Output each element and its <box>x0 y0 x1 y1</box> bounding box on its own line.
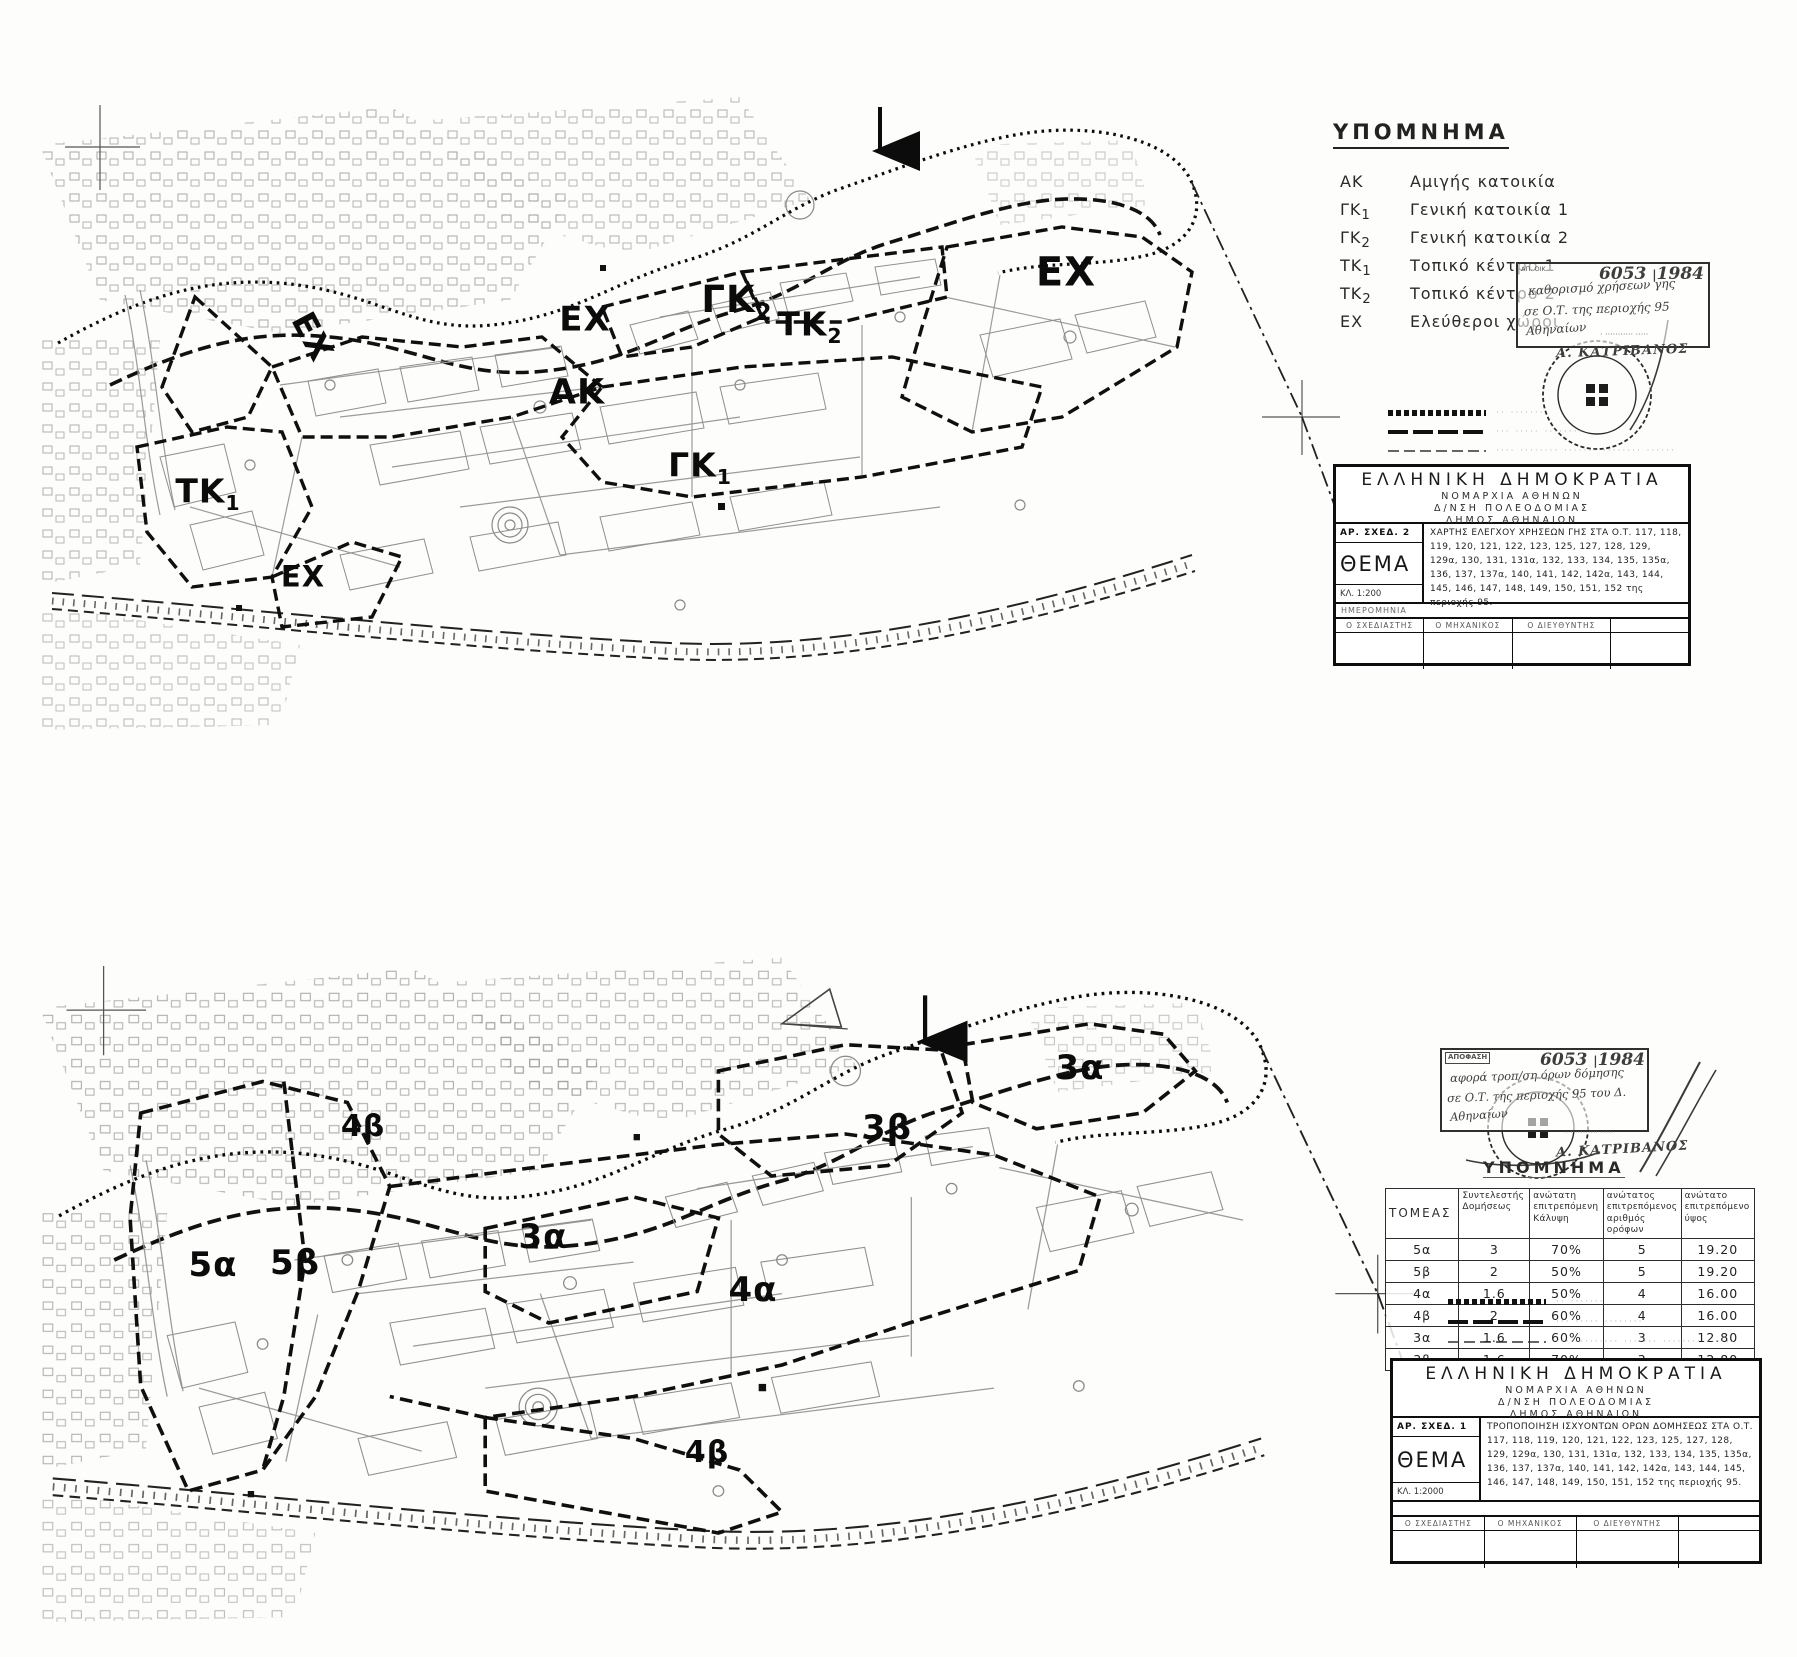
sector-label-4b-top: 4β <box>341 1112 385 1142</box>
sig-engineer: Ο ΜΗΧΑΝΙΚΟΣ <box>1424 619 1512 632</box>
sector-label-5a: 5α <box>188 1248 237 1282</box>
title-country: ΕΛΛΗΝΙΚΗ ΔΗΜΟΚΡΑΤΙΑ <box>1393 1364 1759 1384</box>
date-row <box>1393 1502 1759 1517</box>
col-orofoi: ανώτατος επιτρεπόμενος αριθμός ορόφων <box>1603 1189 1681 1239</box>
sector-label-4b-bottom: 4β <box>685 1438 729 1468</box>
theme-description: ΤΡΟΠΟΠΟΙΗΣΗ ΙΣΧΥΟΝΤΩΝ ΟΡΩΝ ΔΟΜΗΣΕΩΣ ΣΤΑ … <box>1481 1418 1759 1500</box>
zoning-table-header-row: ΤΟΜΕΑΣ Συντελεστής Δομήσεως ανώτατη επιτ… <box>1386 1189 1755 1239</box>
title-block-bottom: ΕΛΛΗΝΙΚΗ ΔΗΜΟΚΡΑΤΙΑ ΝΟΜΑΡΧΙΑ ΑΘΗΝΩΝ Δ/ΝΣ… <box>1390 1358 1762 1564</box>
stamp-handwriting-3: Αθηναίων <box>1526 320 1587 338</box>
zone-label-ex-3: ΕΧ <box>281 563 325 598</box>
line-legend-top-2: ··· ····· ········ <box>1388 427 1584 437</box>
stamp-corner-text: ΑΠ. ΟΙΚ. <box>1521 266 1548 273</box>
sig-engineer: Ο ΜΗΧΑΝΙΚΟΣ <box>1485 1517 1577 1530</box>
sector-label-3a-mid: 3α <box>518 1220 567 1254</box>
line-sample-dotted-icon <box>1448 1298 1546 1306</box>
drawing-number: ΑΡ. ΣΧΕΔ. 2 <box>1336 524 1422 543</box>
title-country: ΕΛΛΗΝΙΚΗ ΔΗΜΟΚΡΑΤΙΑ <box>1336 470 1688 490</box>
zone-label-tk2: ΤΚ2 <box>777 307 842 346</box>
title-directorate: Δ/ΝΣΗ ΠΟΛΕΟΔΟΜΙΑΣ <box>1336 503 1688 514</box>
sector-label-3a-right: 3α <box>1055 1051 1104 1085</box>
sig-blank <box>1679 1517 1759 1530</box>
line-sample-thin-icon <box>1388 447 1486 455</box>
zone-label-ex-4: ΕΧ <box>1036 253 1096 300</box>
stamp-handwriting-1: καθορισμό χρήσεων γης <box>1528 276 1676 298</box>
line-legend-bottom-1: ·· ······· <box>1448 1297 1605 1307</box>
col-ypsos: ανώτατο επιτρεπόμενο ύψος <box>1681 1189 1754 1239</box>
zone-label-gk2: ΓΚ2 <box>701 281 772 325</box>
theme-description: ΧΑΡΤΗΣ ΕΛΕΓΧΟΥ ΧΡΗΣΕΩΝ ΓΗΣ ΣΤΑ Ο.Τ. 117,… <box>1424 524 1688 602</box>
sector-label-3b: 3β <box>862 1111 912 1145</box>
stamp-handwriting-2: σε Ο.Τ. της περιοχής 95 του Δ. <box>1447 1085 1627 1105</box>
title-directorate: Δ/ΝΣΗ ΠΟΛΕΟΔΟΜΙΑΣ <box>1393 1397 1759 1408</box>
date-row: ΗΜΕΡΟΜΗΝΙΑ <box>1336 604 1688 619</box>
sig-drafter: Ο ΣΧΕΔΙΑΣΤΗΣ <box>1336 619 1424 632</box>
sector-label-5b: 5β <box>270 1246 320 1280</box>
scale-label: ΚΛ. 1:200 <box>1336 585 1422 602</box>
stamp-handwriting-3: Αθηναίων <box>1450 1106 1509 1124</box>
scanned-planning-sheet: ΕΧ ΕΧ ΓΚ2 ΤΚ2 ΑΚ ΓΚ1 ΤΚ1 ΕΧ ΕΧ 3α 4β 3β … <box>0 0 1797 1657</box>
sector-label-4a: 4α <box>728 1273 777 1307</box>
legend-item-gk2: ΓΚ2 Γενική κατοικία 2 <box>1340 228 1569 251</box>
table-row: 5α3 70%5 19.20 <box>1386 1239 1755 1261</box>
line-sample-thin-icon <box>1448 1338 1546 1346</box>
sig-director: Ο ΔΙΕΥΘΥΝΤΗΣ <box>1513 619 1612 632</box>
sig-blank <box>1611 619 1688 632</box>
scale-label: ΚΛ. 1:2000 <box>1393 1483 1479 1500</box>
stamp-approver-top: · ··········· ····· <box>1600 330 1648 339</box>
col-tomeas: ΤΟΜΕΑΣ <box>1386 1189 1459 1239</box>
map-top <box>40 97 1340 730</box>
title-prefecture: ΝΟΜΑΡΧΙΑ ΑΘΗΝΩΝ <box>1336 491 1688 502</box>
thema-label: ΘΕΜΑ <box>1393 1437 1479 1483</box>
legend-bottom-title: ΥΠΟΜΝΗΜΑ <box>1483 1158 1625 1178</box>
legend-item-ak: ΑΚ Αμιγής κατοικία <box>1340 172 1556 195</box>
stamp-header: ΑΠΟΦΑΣΗ <box>1445 1052 1490 1064</box>
title-prefecture: ΝΟΜΑΡΧΙΑ ΑΘΗΝΩΝ <box>1393 1385 1759 1396</box>
legend-item-gk1: ΓΚ1 Γενική κατοικία 1 <box>1340 200 1569 223</box>
stamp-handwriting-1: αφορά τροπ/ση όρων δόμησης <box>1450 1065 1624 1085</box>
legend-title: ΥΠΟΜΝΗΜΑ <box>1333 120 1509 149</box>
table-row: 5β2 50%5 19.20 <box>1386 1261 1755 1283</box>
zone-label-gk1: ΓΚ1 <box>668 448 732 487</box>
stamp-approver-bottom: · ··········· ····· <box>1565 1128 1613 1137</box>
line-sample-dotted-icon <box>1388 409 1486 417</box>
line-legend-top-1: ·· ······· <box>1388 408 1545 418</box>
sig-director: Ο ΔΙΕΥΘΥΝΤΗΣ <box>1577 1517 1680 1530</box>
stamp-handwriting-2: σε Ο.Τ. της περιοχής 95 <box>1524 299 1670 318</box>
line-legend-top-3: ···· ········ ······· ········ ······ <box>1388 446 1676 456</box>
zone-label-ak: ΑΚ <box>549 376 605 417</box>
legend-top: ΥΠΟΜΝΗΜΑ <box>1333 120 1509 149</box>
col-syntelestis: Συντελεστής Δομήσεως <box>1459 1189 1530 1239</box>
thema-label: ΘΕΜΑ <box>1336 543 1422 585</box>
line-sample-dashed-icon <box>1388 428 1486 436</box>
zone-label-ex-2: ΕΧ <box>559 303 610 342</box>
drawing-number: ΑΡ. ΣΧΕΔ. 1 <box>1393 1418 1479 1437</box>
approval-stamp-bottom: ΑΠΟΦΑΣΗ 6053 |1984 αφορά τροπ/ση όρων δό… <box>1440 1048 1649 1132</box>
sig-drafter: Ο ΣΧΕΔΙΑΣΤΗΣ <box>1393 1517 1485 1530</box>
zone-label-tk1: ΤΚ1 <box>175 474 240 513</box>
title-block-top: ΕΛΛΗΝΙΚΗ ΔΗΜΟΚΡΑΤΙΑ ΝΟΜΑΡΧΙΑ ΑΘΗΝΩΝ Δ/ΝΣ… <box>1333 464 1691 666</box>
line-legend-bottom-3: ···· ········ ······· ········ ······ <box>1448 1337 1736 1347</box>
line-sample-dashed-icon <box>1448 1318 1546 1326</box>
line-legend-bottom-2: ··· ····· ········ <box>1448 1317 1644 1327</box>
col-kalypsi: ανώτατη επιτρεπόμενη Κάλυψη <box>1530 1189 1604 1239</box>
